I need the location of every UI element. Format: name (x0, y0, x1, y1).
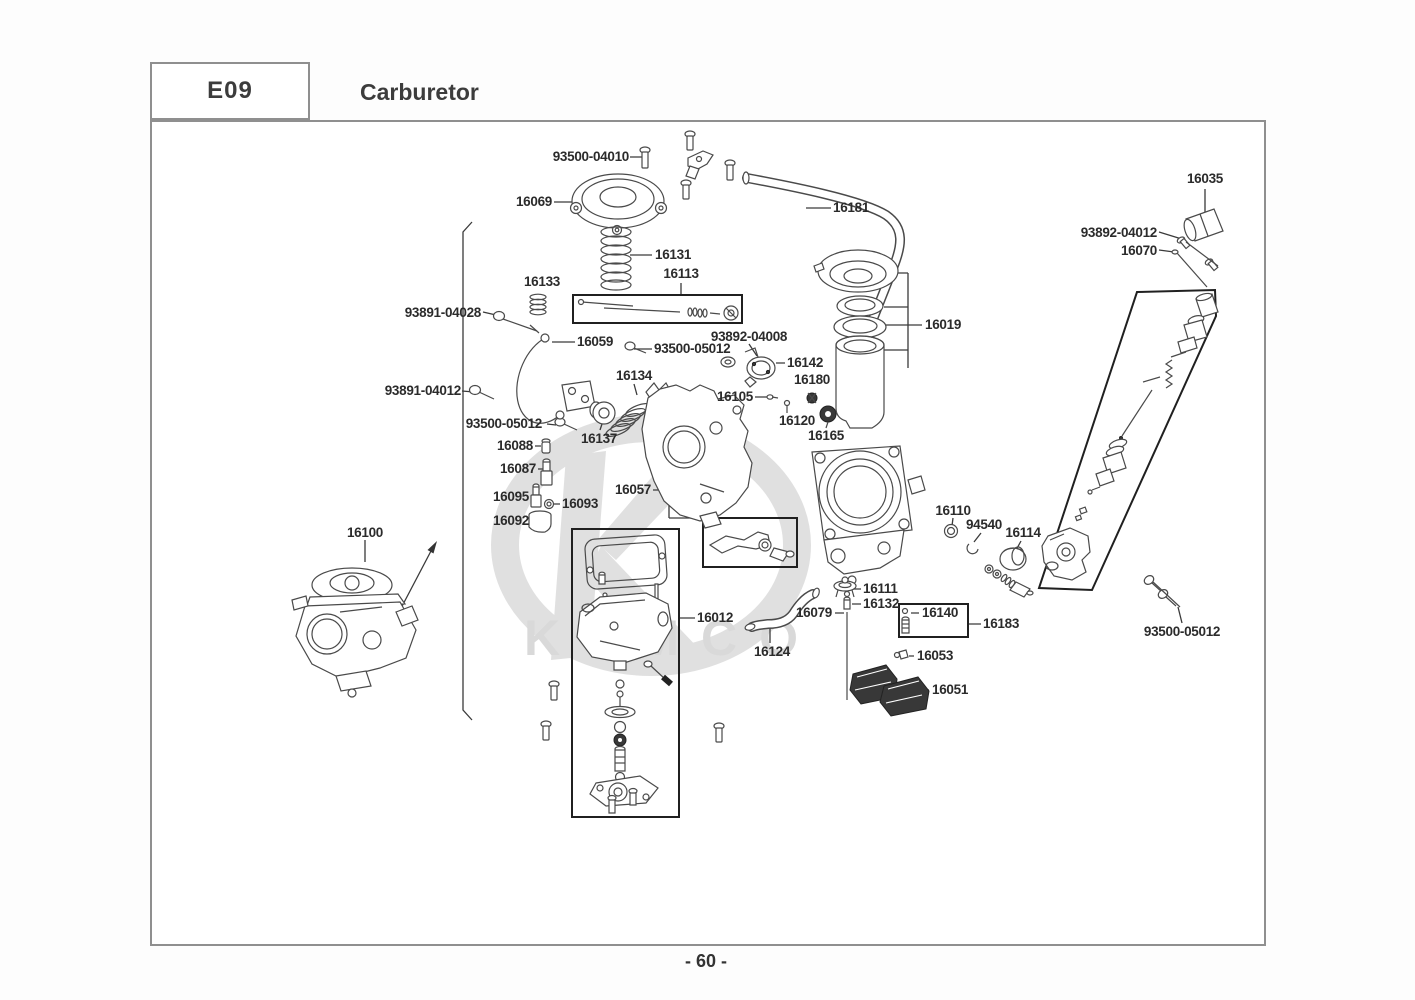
part-label-16132: 16132 (863, 596, 899, 612)
part-label-16113: 16113 (663, 266, 698, 282)
page-number: - 60 - (648, 951, 764, 972)
part-label-94540: 94540 (966, 517, 1002, 533)
part-label-16035: 16035 (1187, 171, 1223, 187)
part-label-16180: 16180 (794, 372, 830, 388)
part-label-16019: 16019 (925, 317, 961, 333)
part-label-16131: 16131 (655, 247, 691, 263)
small-spring-16133 (530, 294, 546, 315)
part-label-93500-04010: 93500-04010 (553, 149, 629, 165)
cap-16035-group (1172, 209, 1223, 287)
part-label-16012: 16012 (697, 610, 733, 626)
part-label-93892-04012: 93892-04012 (1081, 225, 1157, 241)
part-label-16134: 16134 (616, 368, 652, 384)
part-label-93891-04028: 93891-04028 (405, 305, 481, 321)
carburetor-assembly-16100 (292, 568, 418, 697)
part-label-16114: 16114 (1005, 525, 1040, 541)
jet-set-16140 (902, 609, 909, 634)
needle-jet-assembly (1042, 292, 1218, 580)
part-label-16100: 16100 (347, 525, 383, 541)
part-label-16057: 16057 (615, 482, 651, 498)
throttle-rod-set-16113 (579, 300, 739, 321)
part-label-16051: 16051 (932, 682, 968, 698)
part-label-16181: 16181 (833, 200, 869, 216)
part-label-16087: 16087 (500, 461, 536, 477)
diaphragm-cover-16069 (571, 174, 667, 235)
part-label-16070: 16070 (1121, 243, 1157, 259)
part-label-16137: 16137 (581, 431, 617, 447)
part-label-93891-04012: 93891-04012 (385, 383, 461, 399)
float-valve-set (710, 532, 794, 561)
part-label-16105: 16105 (717, 389, 753, 405)
part-label-16133: 16133 (524, 274, 560, 290)
exploded-diagram: KYMCO (0, 0, 1415, 1000)
part-label-16069: 16069 (516, 194, 552, 210)
part-label-16079: 16079 (796, 605, 832, 621)
screws-93500-05012-right (1143, 574, 1180, 607)
part-label-93500-05012-c: 93500-05012 (1144, 624, 1220, 640)
part-label-16093: 16093 (562, 496, 598, 512)
part-label-16059: 16059 (577, 334, 613, 350)
part-label-93892-04008: 93892-04008 (711, 329, 787, 345)
part-label-93500-05012-b: 93500-05012 (466, 416, 542, 432)
part-label-16165: 16165 (808, 428, 844, 444)
vacuum-piston-set-16019 (814, 250, 898, 428)
part-label-16092: 16092 (493, 513, 529, 529)
part-label-16183: 16183 (983, 616, 1019, 632)
part-label-16053: 16053 (917, 648, 953, 664)
part-label-16140: 16140 (922, 605, 958, 621)
part-label-16142: 16142 (787, 355, 823, 371)
catalog-page: E09 Carburetor KYMCO (0, 0, 1415, 1000)
carb-body-top-view (812, 446, 925, 584)
part-label-16120: 16120 (779, 413, 815, 429)
part-label-16088: 16088 (497, 438, 533, 454)
part-label-16095: 16095 (493, 489, 529, 505)
vacuum-spring-16131 (601, 227, 631, 290)
part-label-16111: 16111 (863, 581, 898, 597)
part-label-16124: 16124 (754, 644, 790, 660)
